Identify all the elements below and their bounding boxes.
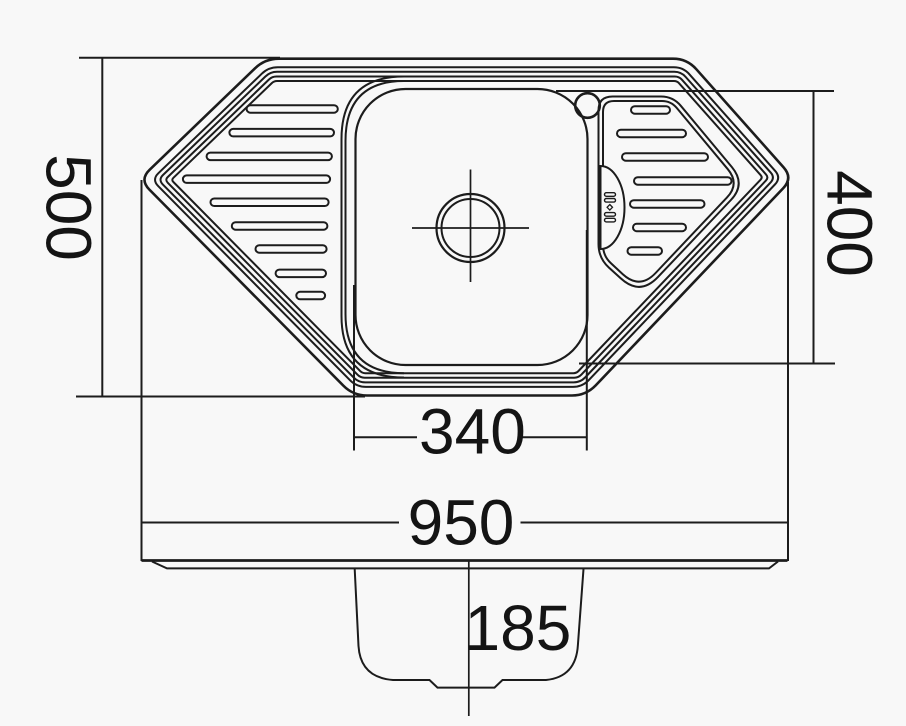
svg-text:400: 400 (814, 170, 886, 277)
svg-text:500: 500 (33, 154, 105, 261)
svg-text:340: 340 (419, 396, 526, 468)
svg-text:185: 185 (465, 592, 572, 664)
svg-text:950: 950 (408, 487, 515, 559)
